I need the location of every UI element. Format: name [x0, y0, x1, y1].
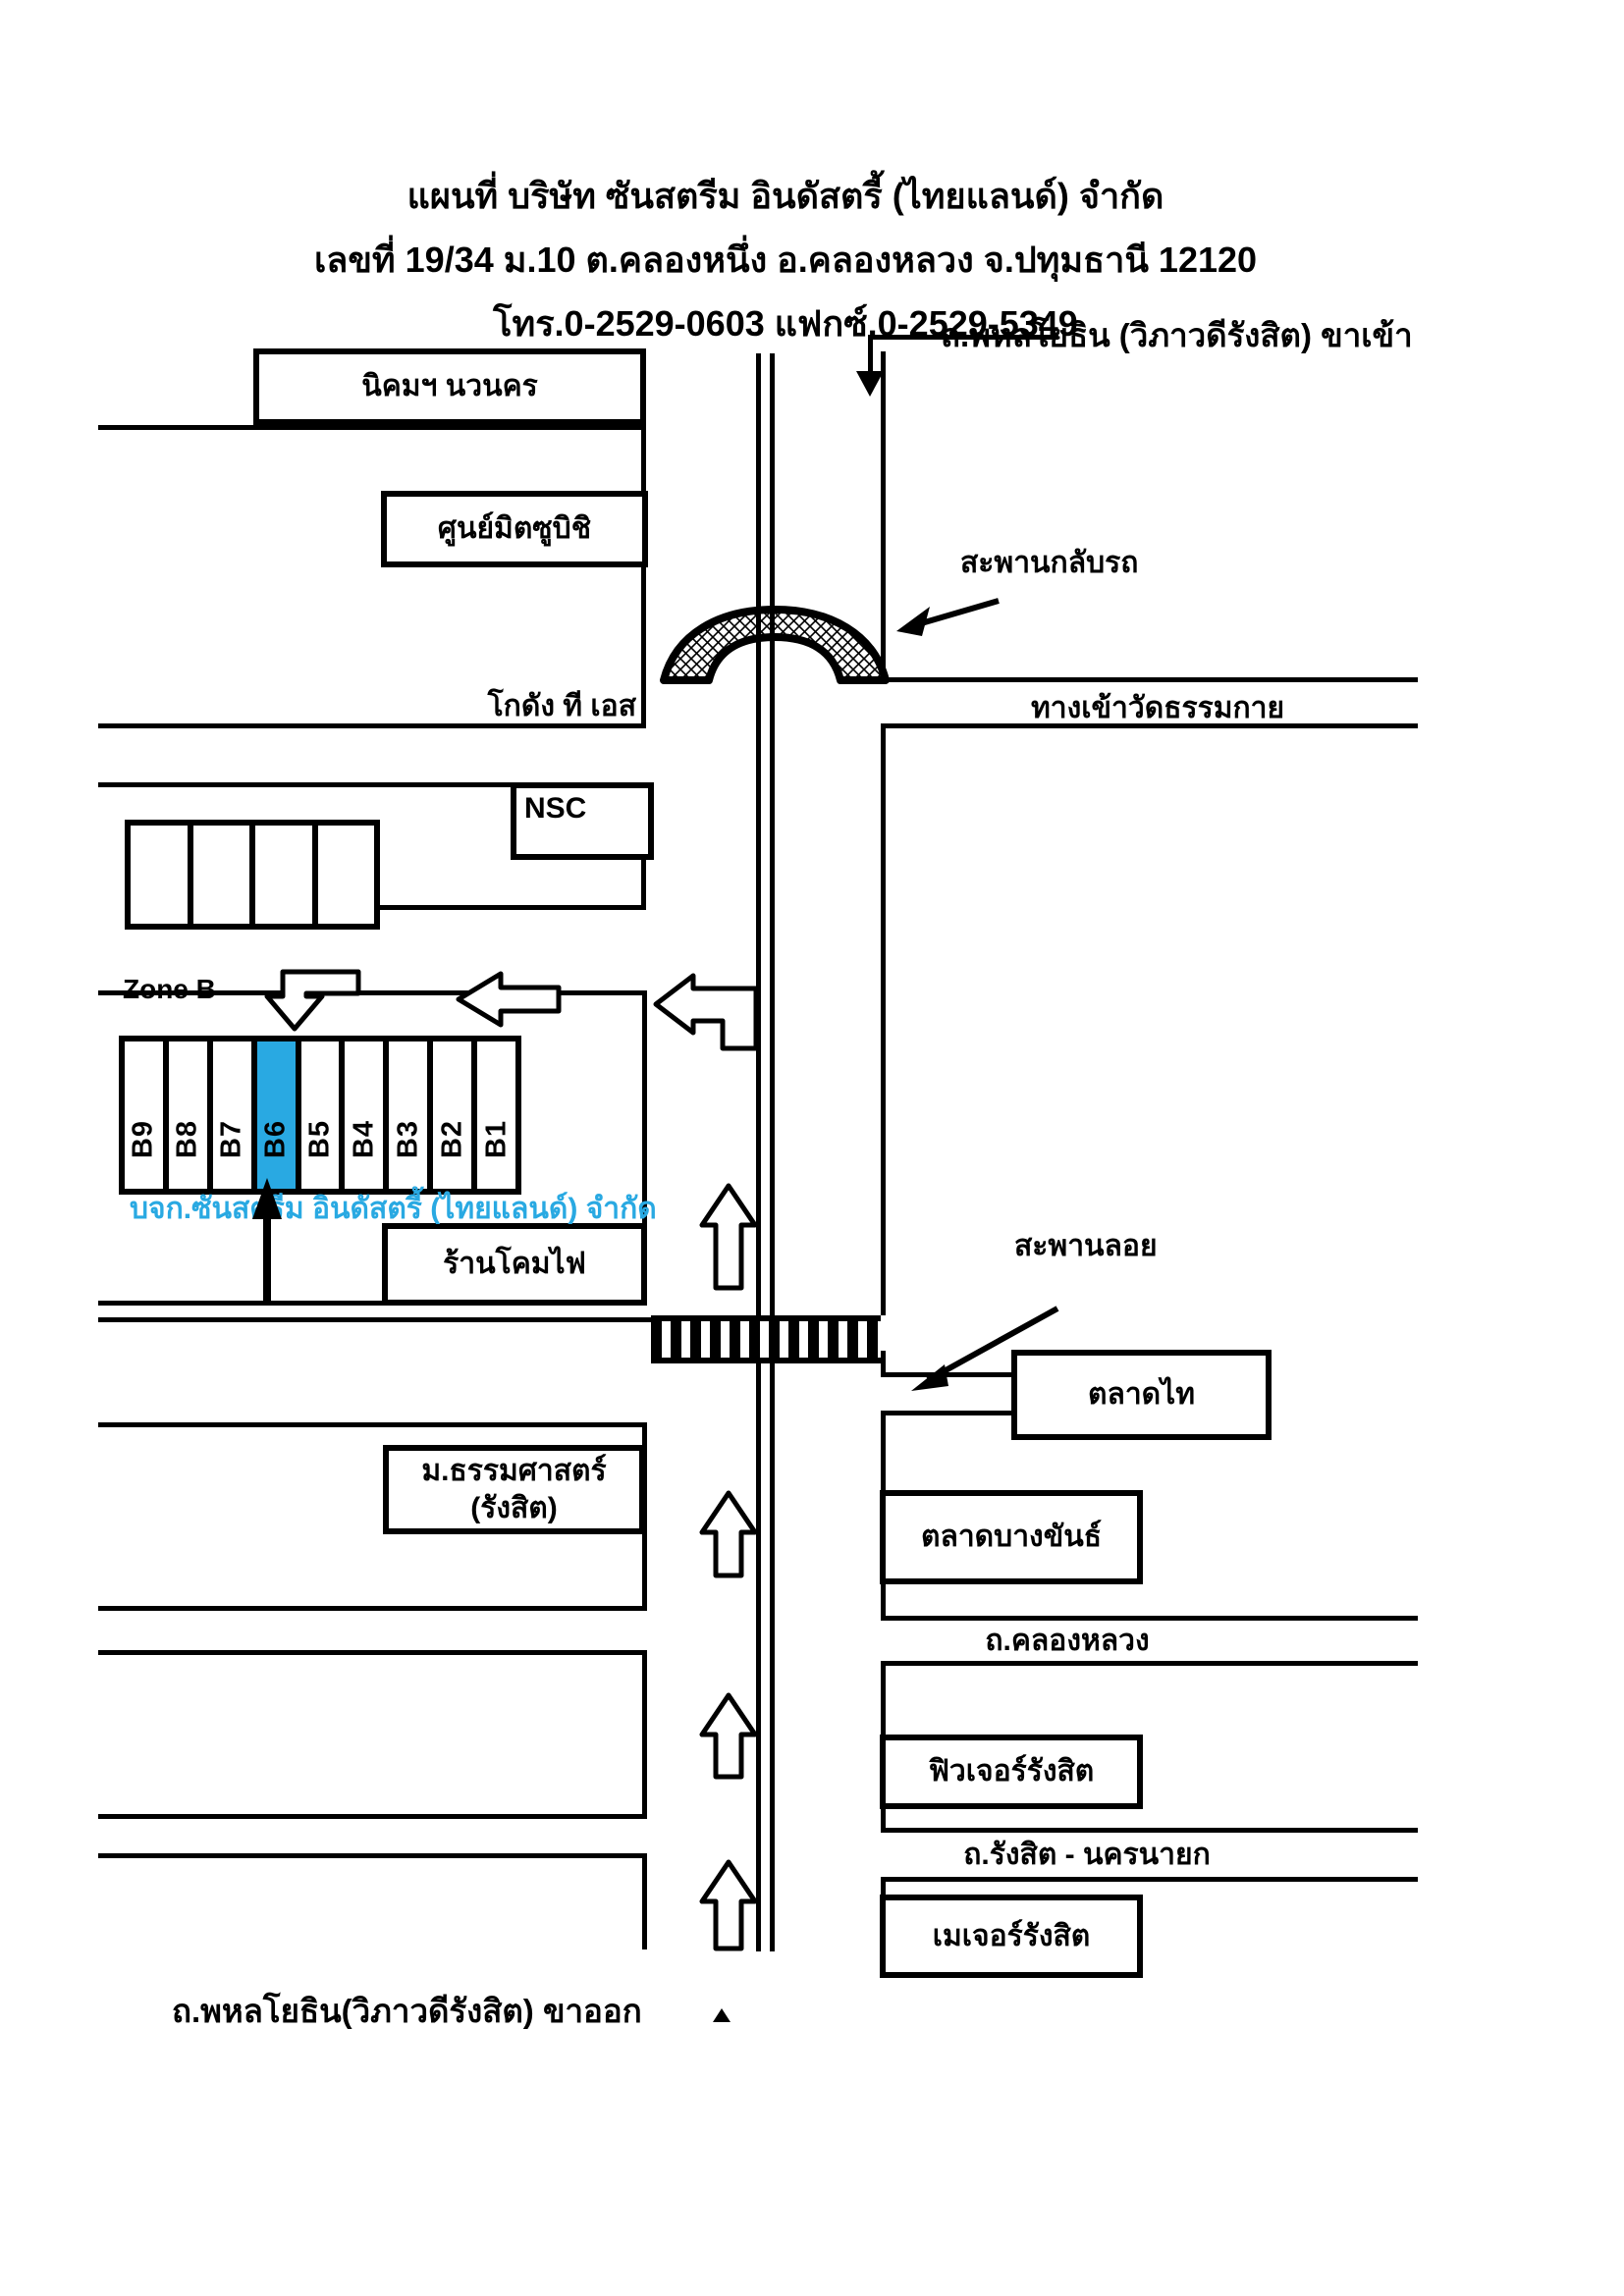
zone-b-turn-arrow	[267, 972, 358, 1029]
up-arrow-4	[702, 1862, 755, 1949]
company-pointer-head	[252, 1178, 282, 1219]
pedestrian-bridge-arrow-line	[928, 1308, 1057, 1380]
exit-left-arrow	[656, 976, 756, 1048]
up-arrow-3	[702, 1695, 755, 1777]
up-arrow-2	[702, 1493, 755, 1575]
bottom-tick-triangle	[713, 2008, 731, 2022]
inbound-arrow-head	[856, 371, 884, 397]
uturn-bridge-shape	[664, 610, 886, 680]
up-arrow-1	[702, 1186, 755, 1288]
uturn-arrow-head	[896, 607, 930, 636]
pedestrian-bridge-arrow-head	[911, 1364, 948, 1391]
map-canvas: แผนที่ บริษัท ซันสตรีม อินดัสตรี้ (ไทยแล…	[0, 0, 1624, 2296]
map-shapes-layer	[0, 0, 1624, 2296]
left-arrow	[459, 974, 559, 1025]
